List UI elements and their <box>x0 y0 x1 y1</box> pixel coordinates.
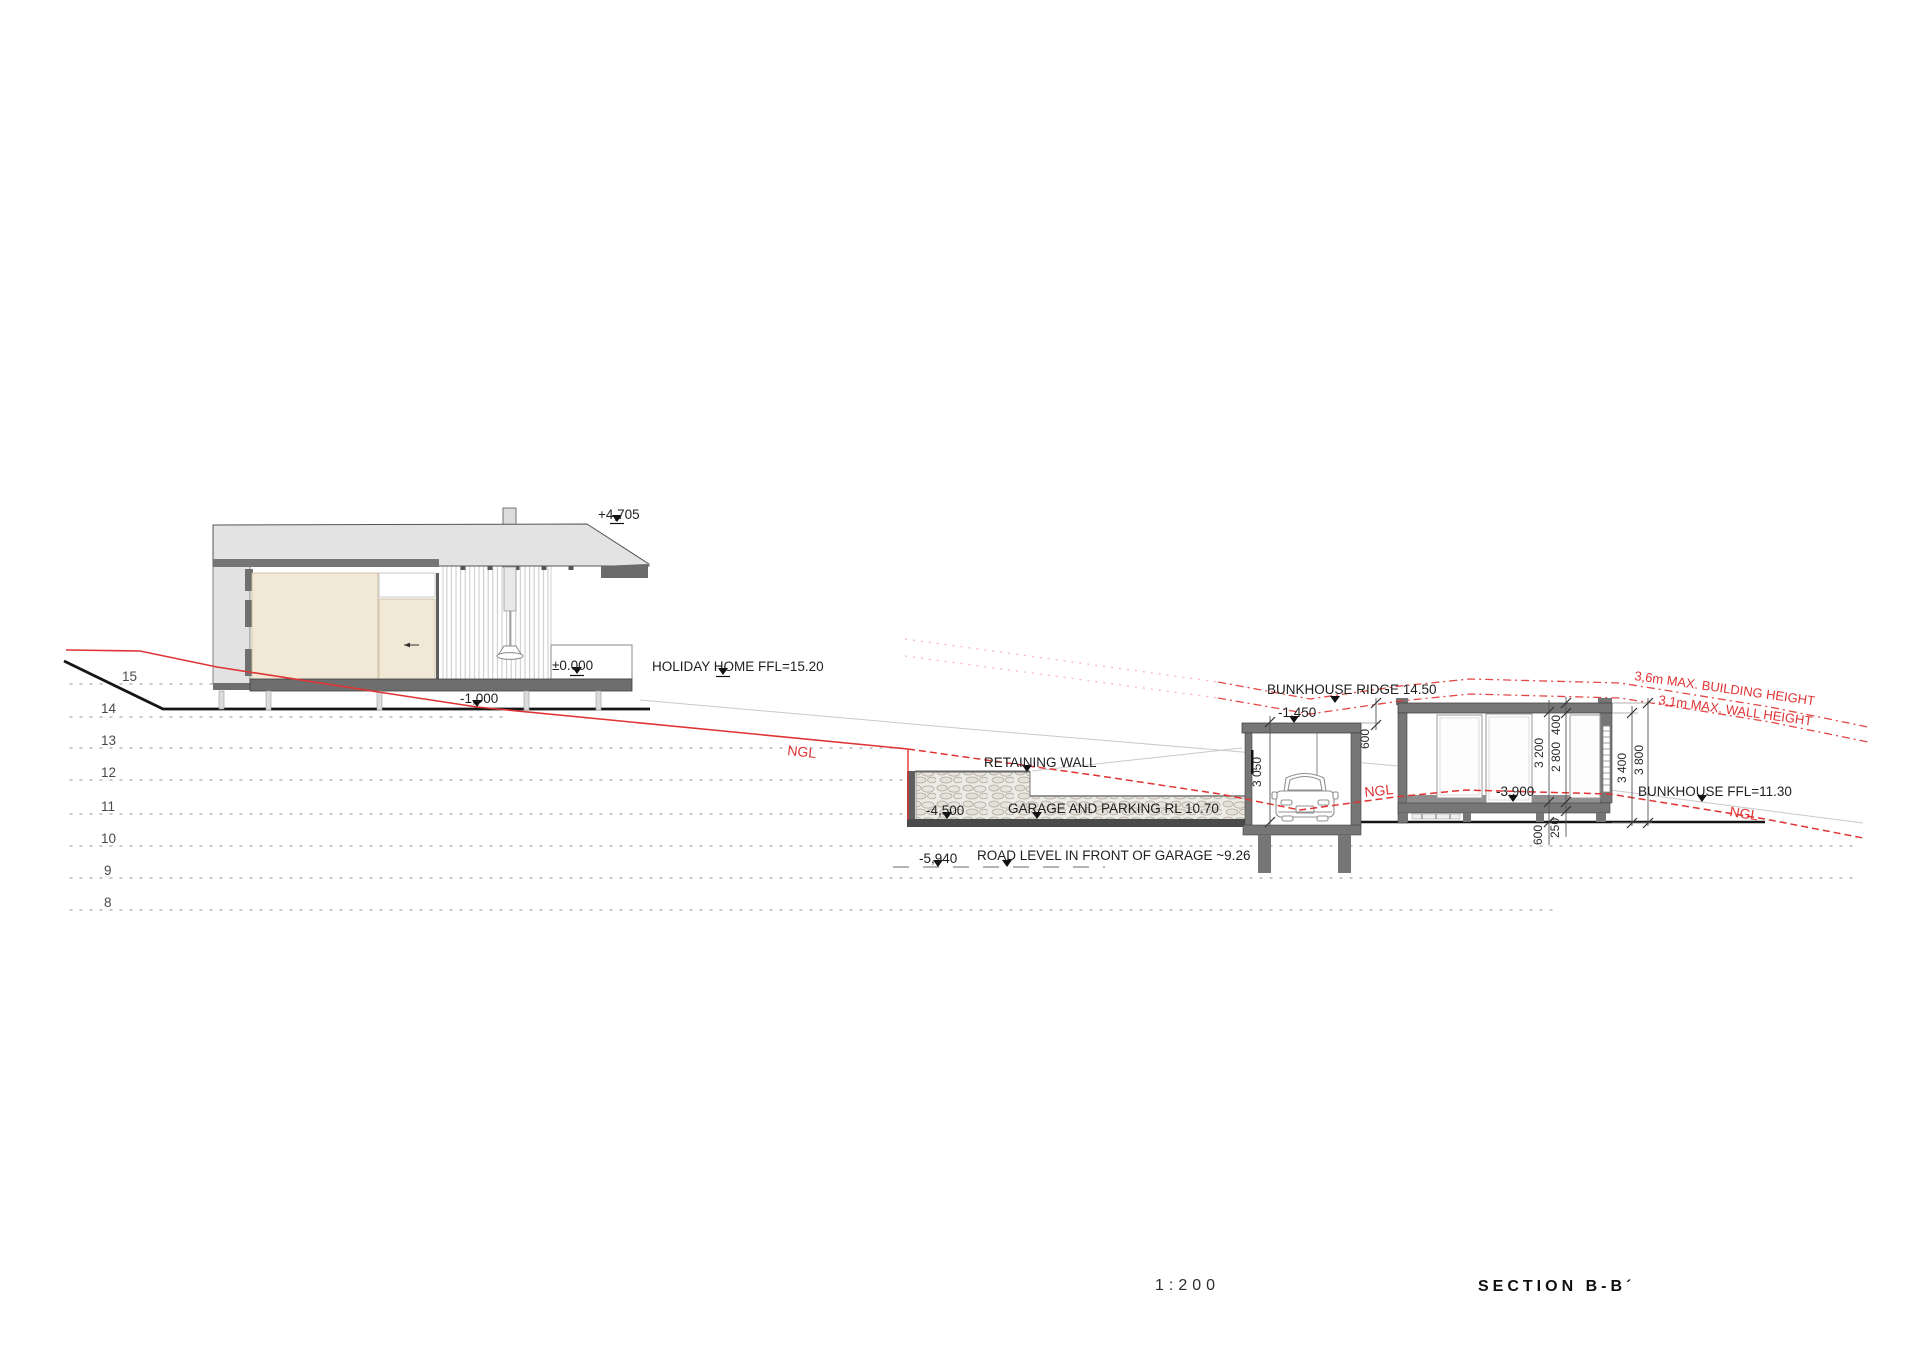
marker-bunkhouse-ridge <box>1330 696 1340 703</box>
bunkhouse-ridge-label: BUNKHOUSE RIDGE 14.50 <box>1267 682 1437 697</box>
car-wheel-left <box>1282 816 1293 821</box>
ngl-label-1: NGL <box>787 742 818 761</box>
zero-level-label: ±0.000 <box>552 658 593 673</box>
minus-1450-label: -1,450 <box>1278 705 1316 720</box>
road-level-label: ROAD LEVEL IN FRONT OF GARAGE ~9.26 <box>977 848 1250 863</box>
holiday-home-left-wall <box>213 566 250 684</box>
parking-slab <box>907 819 1248 827</box>
car-headlight-left <box>1281 800 1292 805</box>
max-wall-line-faint <box>905 656 1218 698</box>
porch-slatted-screen <box>443 562 551 680</box>
dim-garage-roof-offset: 600 <box>1358 729 1372 749</box>
pendant-rod <box>509 611 511 647</box>
garage-footing-right <box>1338 835 1351 873</box>
car-headlight-right <box>1318 800 1329 805</box>
grid-label-8: 8 <box>104 895 112 910</box>
section-bb-drawing: 15 14 13 12 11 10 9 8 <box>0 0 1920 1357</box>
retaining-wall-label: RETAINING WALL <box>984 755 1097 770</box>
grid-label-15: 15 <box>122 669 137 684</box>
section-drawing-page: 15 14 13 12 11 10 9 8 <box>0 0 1920 1357</box>
garage-parking-label: GARAGE AND PARKING RL 10.70 <box>1008 801 1219 816</box>
bunkhouse <box>1396 698 1612 823</box>
dim-bunkhouse-3400: 3 400 <box>1615 753 1629 783</box>
ngl-label-3: NGL <box>1729 803 1760 823</box>
holiday-home-posts <box>219 691 601 710</box>
holiday-home-interior-door <box>379 599 435 680</box>
grid-label-13: 13 <box>101 733 116 748</box>
scale-label: 1:200 <box>1155 1277 1220 1294</box>
garage-roof-slab <box>1242 723 1361 733</box>
bunkhouse-window-1 <box>1437 715 1482 798</box>
holiday-home-partition <box>436 573 439 680</box>
grid-label-9: 9 <box>104 863 112 878</box>
section-title: SECTION B-B´ <box>1478 1278 1635 1295</box>
grid-label-11: 11 <box>101 799 115 814</box>
car-mirror-left <box>1272 792 1277 799</box>
holiday-ffl-label: HOLIDAY HOME FFL=15.20 <box>652 659 824 674</box>
grid-label-10: 10 <box>101 831 116 846</box>
car-wheel-right <box>1317 816 1328 821</box>
roof-fascia <box>601 564 648 578</box>
bunkhouse-ffl-label: BUNKHOUSE FFL=11.30 <box>1638 784 1792 799</box>
flue-box <box>504 567 516 611</box>
dim-bunkhouse-clear: 2 800 <box>1549 742 1563 772</box>
bunkhouse-vent-strip <box>1412 814 1460 819</box>
bunkhouse-louvre <box>1603 726 1610 792</box>
ridge-level-label: +4,705 <box>598 507 640 522</box>
garage-floor-slab <box>1243 825 1361 835</box>
dim-bunkhouse-wall: 3 200 <box>1532 738 1546 768</box>
bunkhouse-floor-slab <box>1398 803 1610 813</box>
max-building-line-faint <box>905 639 1218 682</box>
minus-4500-label: -4,500 <box>926 803 964 818</box>
bunkhouse-window-2 <box>1570 715 1600 798</box>
garage-footing-left <box>1258 835 1271 873</box>
car-mirror-right <box>1333 792 1338 799</box>
holiday-home-interior-wall <box>252 573 378 680</box>
minus-1000-label: -1,000 <box>460 691 498 706</box>
bunkhouse-roof-slab <box>1398 703 1612 713</box>
dim-bunkhouse-slab: 250 <box>1548 818 1562 838</box>
grid-label-14: 14 <box>101 701 117 716</box>
grid-label-12: 12 <box>101 765 116 780</box>
roof-underside-band <box>213 559 439 567</box>
contour-grid-labels: 15 14 13 12 11 10 9 8 <box>101 669 137 910</box>
minus-3900-label: -3,900 <box>1496 784 1534 799</box>
ngl-label-2: NGL <box>1364 781 1395 800</box>
holiday-home-bulkhead <box>379 573 435 597</box>
dim-bunkhouse-roof: 400 <box>1549 715 1563 735</box>
dim-bunkhouse-plinth: 600 <box>1531 825 1545 845</box>
garage <box>1242 723 1361 873</box>
minus-5940-label: -5,940 <box>919 851 957 866</box>
dim-bunkhouse-3800: 3 800 <box>1632 745 1646 775</box>
dim-garage-height: 3 050 <box>1250 757 1264 787</box>
retaining-wall <box>907 771 1248 827</box>
holiday-home-wall-sill <box>213 683 253 690</box>
holiday-home <box>213 508 649 710</box>
